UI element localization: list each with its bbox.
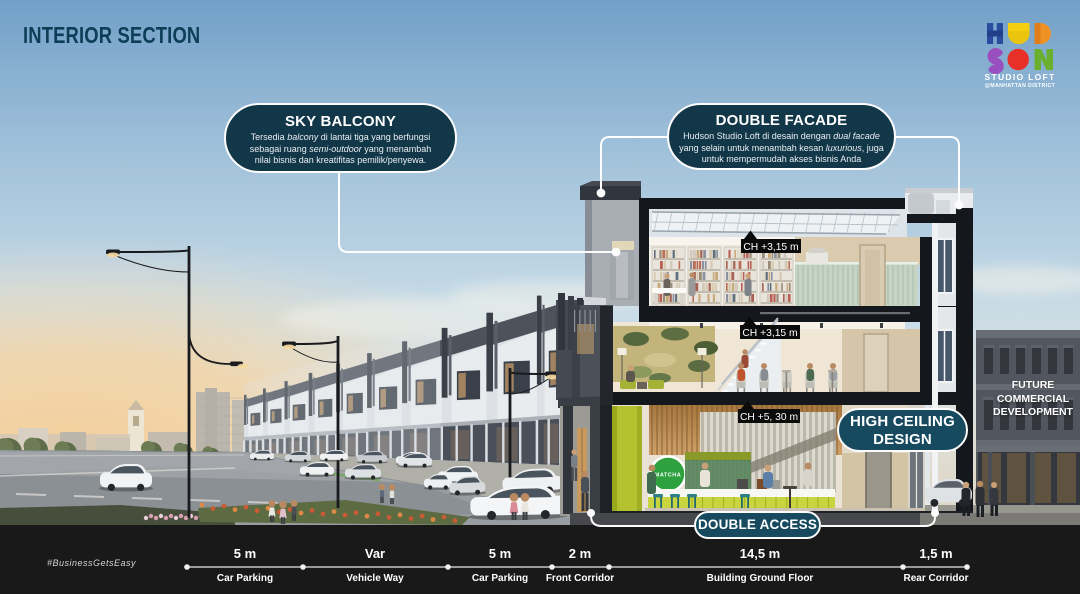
svg-text:CH +5, 30 m: CH +5, 30 m: [740, 412, 798, 423]
svg-text:CH +3,15 m: CH +3,15 m: [743, 242, 798, 253]
svg-text:CH +3,15 m: CH +3,15 m: [742, 328, 797, 339]
svg-text:MATCHA: MATCHA: [655, 473, 681, 479]
